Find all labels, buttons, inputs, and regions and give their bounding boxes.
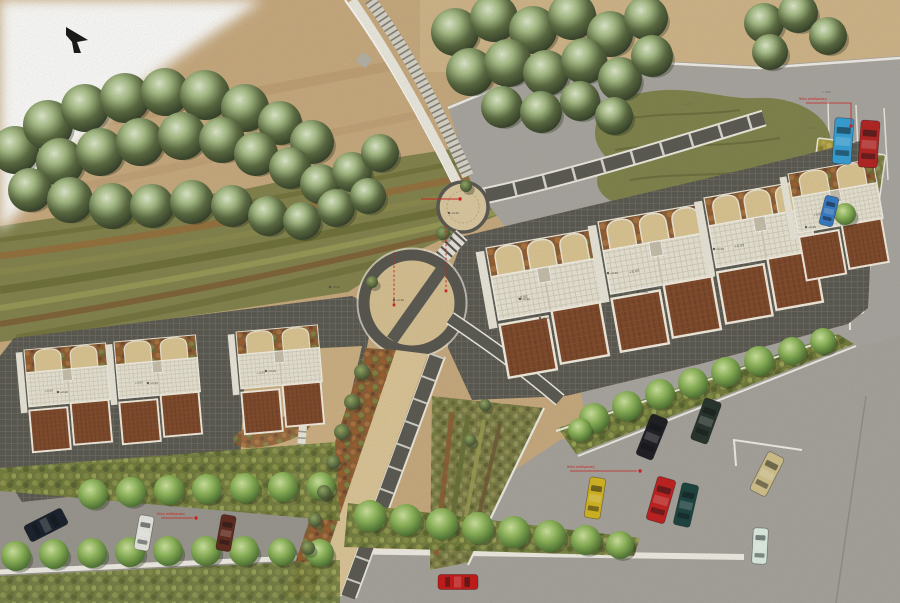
forest-tree [361,134,399,172]
brown-roof [241,389,282,434]
brown-roof [552,302,609,363]
courtyard-arch [246,330,274,354]
street-tree [153,536,183,566]
unit-level-marker: +0.00 [45,388,54,393]
car-windshield [863,129,877,137]
street-tree [354,500,386,532]
level-marker-text: +0.00 [542,316,550,320]
level-marker-text: +0.00 [60,390,68,394]
annotation-dot [638,469,641,472]
forest-tree [211,185,253,227]
forest-tree [283,202,321,240]
courtyard-arch [282,327,310,351]
brown-roof [283,382,324,427]
car-rear-glass [835,150,849,156]
annotation-dot [849,124,852,127]
street-tree [678,368,708,398]
street-tree [612,391,642,421]
small-mark-text: + 0.00 [822,90,831,94]
forest-tree [76,128,124,176]
car-roof-highlight [454,577,461,588]
street-tree [268,472,298,502]
unit-stair [152,361,162,373]
level-marker-text: +0.00 [522,297,530,301]
brown-roof [612,290,669,351]
level-marker-text: +0.00 [610,271,618,275]
street-tree [606,531,634,559]
forest-tree [595,97,633,135]
street-tree [426,508,458,540]
unit-level-marker: +0.00 [257,370,266,375]
brown-roof [500,316,557,377]
unit-stair [649,241,664,258]
brown-roof [799,230,846,280]
street-tree [744,346,774,376]
small-mark-text: +0.00 [806,126,814,130]
forest-tree [170,180,214,224]
annotation-label: θέση στάθμευσης [567,465,595,469]
brown-roof [29,407,70,452]
red-car-parked [858,120,880,168]
courtyard-arch [70,345,98,369]
forest-tree [116,118,164,166]
white-car [752,528,769,565]
street-tree [778,337,806,365]
level-marker-text: +0.00 [640,290,648,294]
street-tree [1,541,31,571]
forest-tree [560,81,600,121]
small-mark-text: + 0.00 [683,102,692,106]
street-tree [568,418,592,442]
forest-tree [752,34,788,70]
street-tree [191,536,221,566]
unit-stair [537,267,552,284]
car-rear-glass [445,577,450,587]
street-tree [78,479,108,509]
shrub [354,364,370,380]
courtyard-arch [160,337,188,361]
car-windshield [755,535,765,541]
street-tree [116,477,146,507]
brown-roof [161,392,202,437]
shrub [366,276,378,288]
street-tree [534,520,566,552]
level-marker-text: +0.00 [268,369,276,373]
leader-dot [458,197,461,200]
shrub [334,424,350,440]
street-tree [77,538,107,568]
brown-roof [119,399,160,444]
forest-tree [130,184,174,228]
red-car-driving [438,575,478,590]
forest-tree [47,177,93,223]
courtyard-arch [124,340,152,364]
street-tree [192,474,222,504]
level-marker-text: +0.00 [808,225,816,229]
annotation-label: θέση στάθμευσης [799,97,827,101]
site-plan-stage: +0.00+0.00+0.00+0.00+0.00+0.00+0.00 θέση… [0,0,900,603]
section-line-dot [445,290,448,293]
level-marker-text: +0.00 [396,298,404,302]
unit-stair [753,216,767,232]
forest-tree [350,178,386,214]
shrub [308,513,322,527]
forest-tree [8,168,52,212]
street-tree [462,512,494,544]
shrub [317,485,331,499]
annotation-label: θέση στάθμευσης [157,512,185,516]
car-roof-highlight [861,140,877,149]
street-tree [230,473,260,503]
street-tree [390,504,422,536]
unit-level-marker: +0.00 [135,380,144,385]
shrub [464,434,476,446]
annotation-dot [194,516,197,519]
brown-roof [71,400,112,445]
street-tree [39,539,69,569]
street-tree [645,379,675,409]
shrub [460,180,472,192]
shrub [344,394,360,410]
courtyard-arch [34,348,62,372]
forest-tree [809,17,847,55]
street-tree [268,538,296,566]
street-tree [711,357,741,387]
shrub [301,541,315,555]
forest-tree [248,196,288,236]
car-windshield [837,127,851,134]
unit-stair [62,369,72,381]
level-marker-text: +0.00 [451,211,459,215]
unit-stair [274,351,284,363]
street-tree [498,516,530,548]
forest-tree [520,91,562,133]
forest-tree [481,86,523,128]
level-marker-text: +0.00 [150,381,158,385]
forest-tree [317,189,355,227]
street-tree [571,525,601,555]
forest-tree [89,183,135,229]
shrub [326,455,340,469]
brown-roof [664,276,721,337]
car-rear-glass [754,553,764,558]
car-roof-highlight [754,543,765,550]
shrub [479,399,491,411]
shrub [436,226,450,240]
forest-tree [158,112,206,160]
car-windshield [464,577,470,587]
street-tree [810,328,836,354]
street-tree [229,536,259,566]
forest-tree [631,35,673,77]
car-roof-highlight [835,137,851,146]
brown-roof [717,264,772,323]
car-rear-glass [861,153,875,160]
site-plan-drawing: +0.00+0.00+0.00+0.00+0.00+0.00+0.00 θέση… [0,0,900,603]
level-marker-text: +0.00 [332,285,340,289]
street-tree [154,475,184,505]
level-marker-text: +0.00 [716,247,724,251]
section-line-dot [393,304,396,307]
